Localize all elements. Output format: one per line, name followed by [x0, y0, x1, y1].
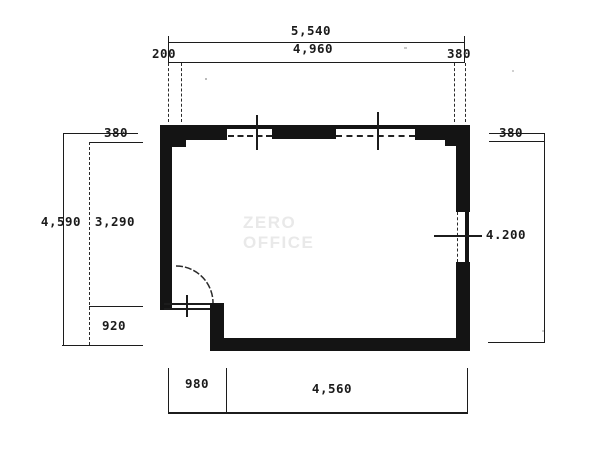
dim-tick [226, 368, 227, 413]
window-center-tick [377, 112, 379, 150]
watermark-text: ZERO OFFICE [243, 213, 373, 253]
extension-line [181, 63, 182, 122]
window-center-tick [434, 235, 482, 237]
dim-left-top: 380 [99, 126, 133, 140]
dim-line [89, 306, 143, 307]
window-right-inner [457, 212, 458, 262]
dim-top-left: 200 [146, 47, 182, 61]
window-right-outer [465, 212, 469, 262]
dim-left-mid: 3,290 [93, 215, 137, 229]
wall-right-upper [456, 125, 470, 212]
window-top-2 [336, 135, 415, 137]
dim-line [168, 62, 465, 63]
dim-line [89, 142, 90, 345]
wall-bottom [210, 338, 470, 351]
dim-bottom-right: 4,560 [306, 382, 358, 396]
dim-right-top: 380 [494, 126, 528, 140]
dim-top-overall: 5,540 [283, 24, 339, 38]
dim-line [89, 142, 143, 143]
dim-bottom-left: 980 [178, 377, 216, 391]
dim-left-overall: 4,590 [38, 215, 84, 229]
dim-line [488, 342, 544, 343]
extension-line [168, 63, 169, 122]
dim-tick [467, 368, 468, 413]
wall-left [160, 125, 172, 310]
dim-line [489, 141, 545, 142]
wall-top-segment [272, 125, 336, 139]
floorplan-drawing: 5,540 200 4,960 380 380 4,590 3,290 920 … [0, 0, 600, 454]
dim-line [62, 345, 143, 346]
door-center-tick [186, 295, 188, 317]
dim-top-right: 380 [441, 47, 477, 61]
extension-line [454, 63, 455, 122]
dim-top-mid: 4,960 [285, 42, 341, 56]
dim-line [544, 133, 545, 343]
extension-line [465, 63, 466, 122]
window-top-1 [228, 135, 272, 137]
dim-left-bottom: 920 [97, 319, 131, 333]
scan-noise-dot [512, 70, 514, 72]
scan-noise-dot [542, 330, 544, 332]
wall-entry-step [210, 303, 224, 351]
scan-noise-dot [404, 47, 407, 49]
dim-tick [168, 368, 169, 413]
dim-right-main: 4.200 [483, 228, 529, 242]
dim-line [168, 412, 468, 414]
scan-noise-dot [205, 78, 207, 80]
window-center-tick [256, 115, 258, 150]
dim-line [63, 133, 64, 345]
